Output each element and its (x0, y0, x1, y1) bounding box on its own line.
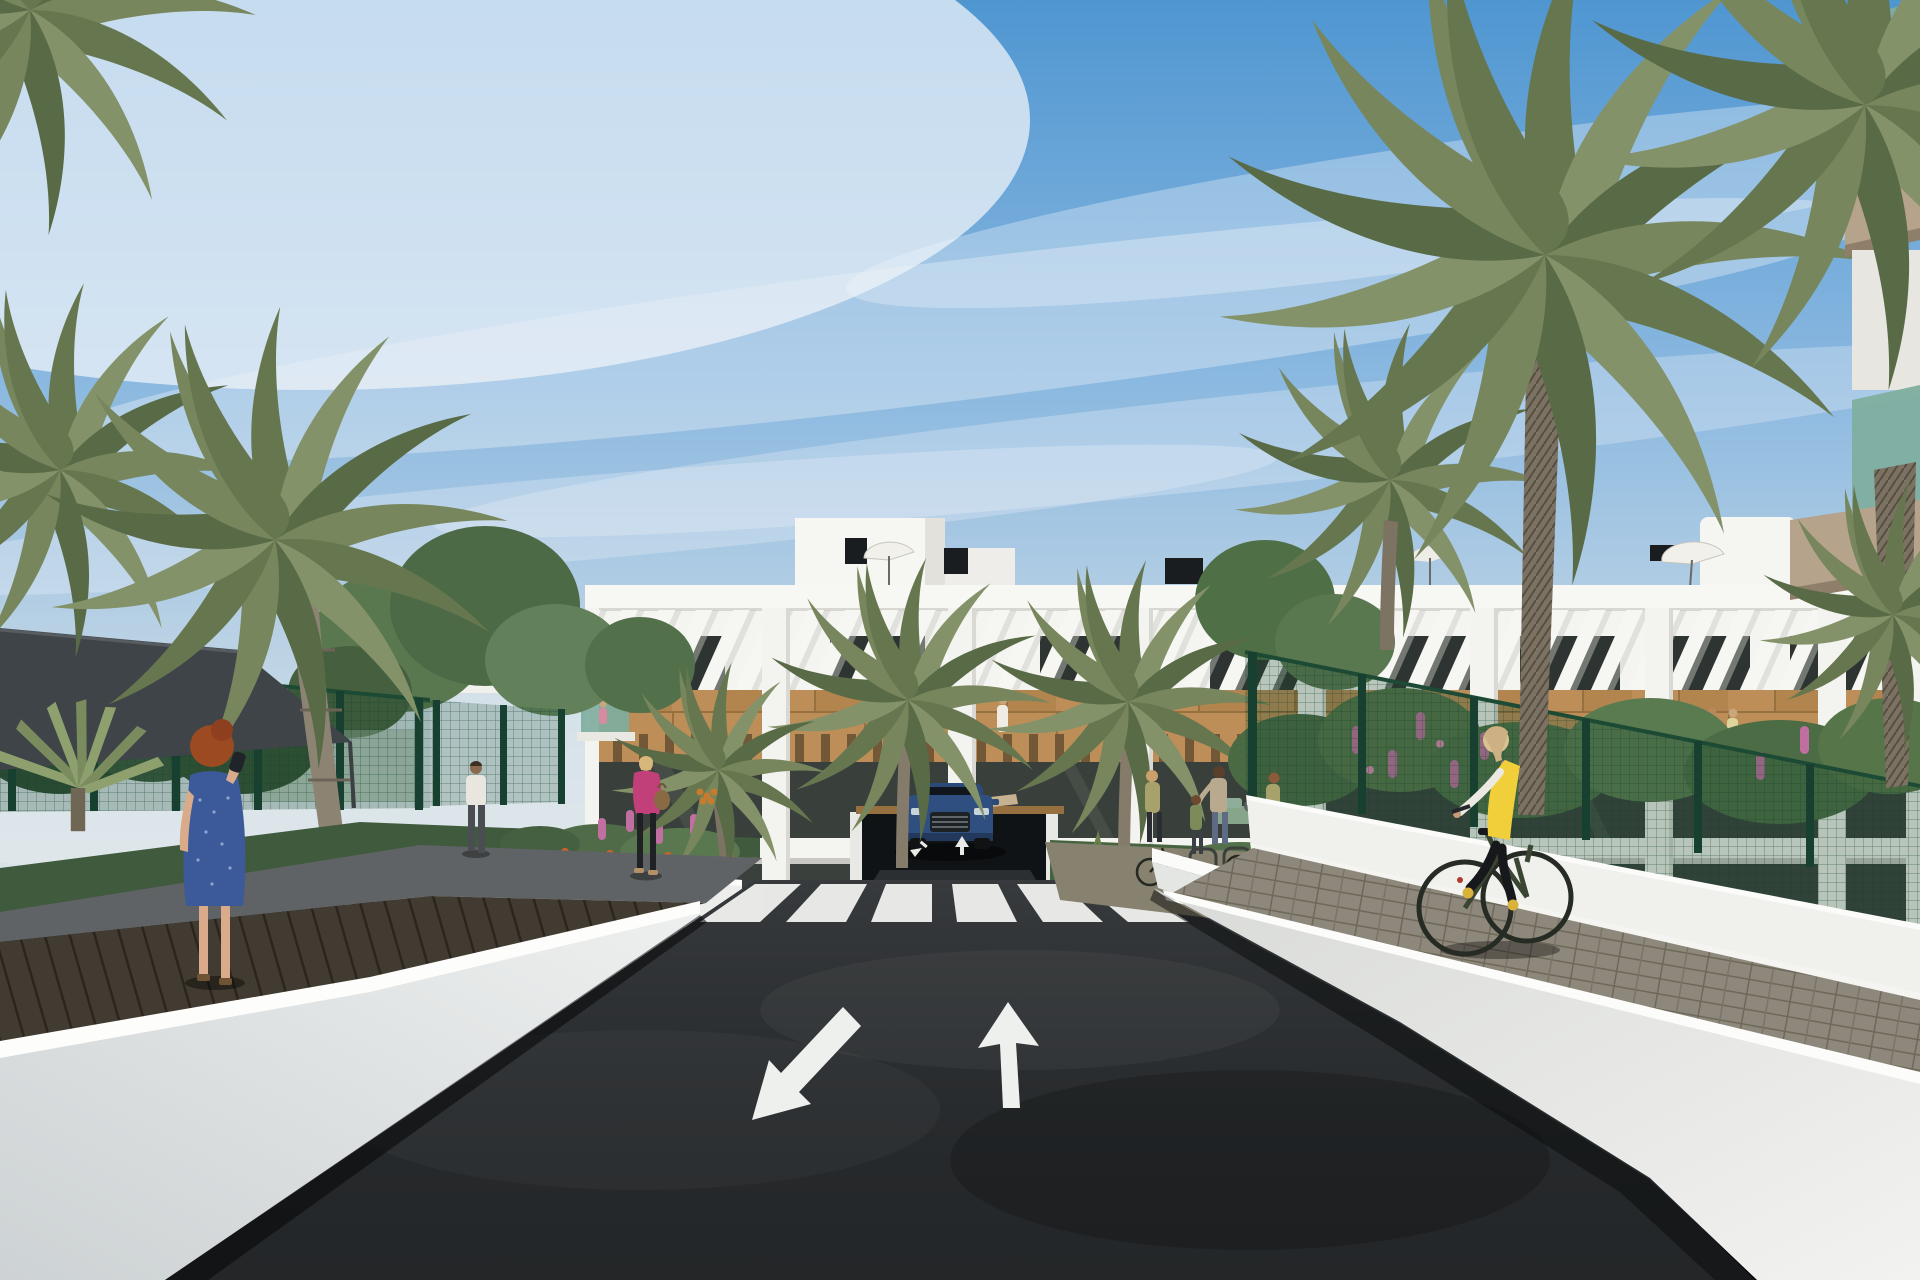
architectural-render (0, 0, 1920, 1280)
dress (183, 771, 245, 906)
handbag (654, 790, 670, 810)
render-image (0, 0, 1920, 1280)
left-secondary-fence (430, 700, 565, 806)
